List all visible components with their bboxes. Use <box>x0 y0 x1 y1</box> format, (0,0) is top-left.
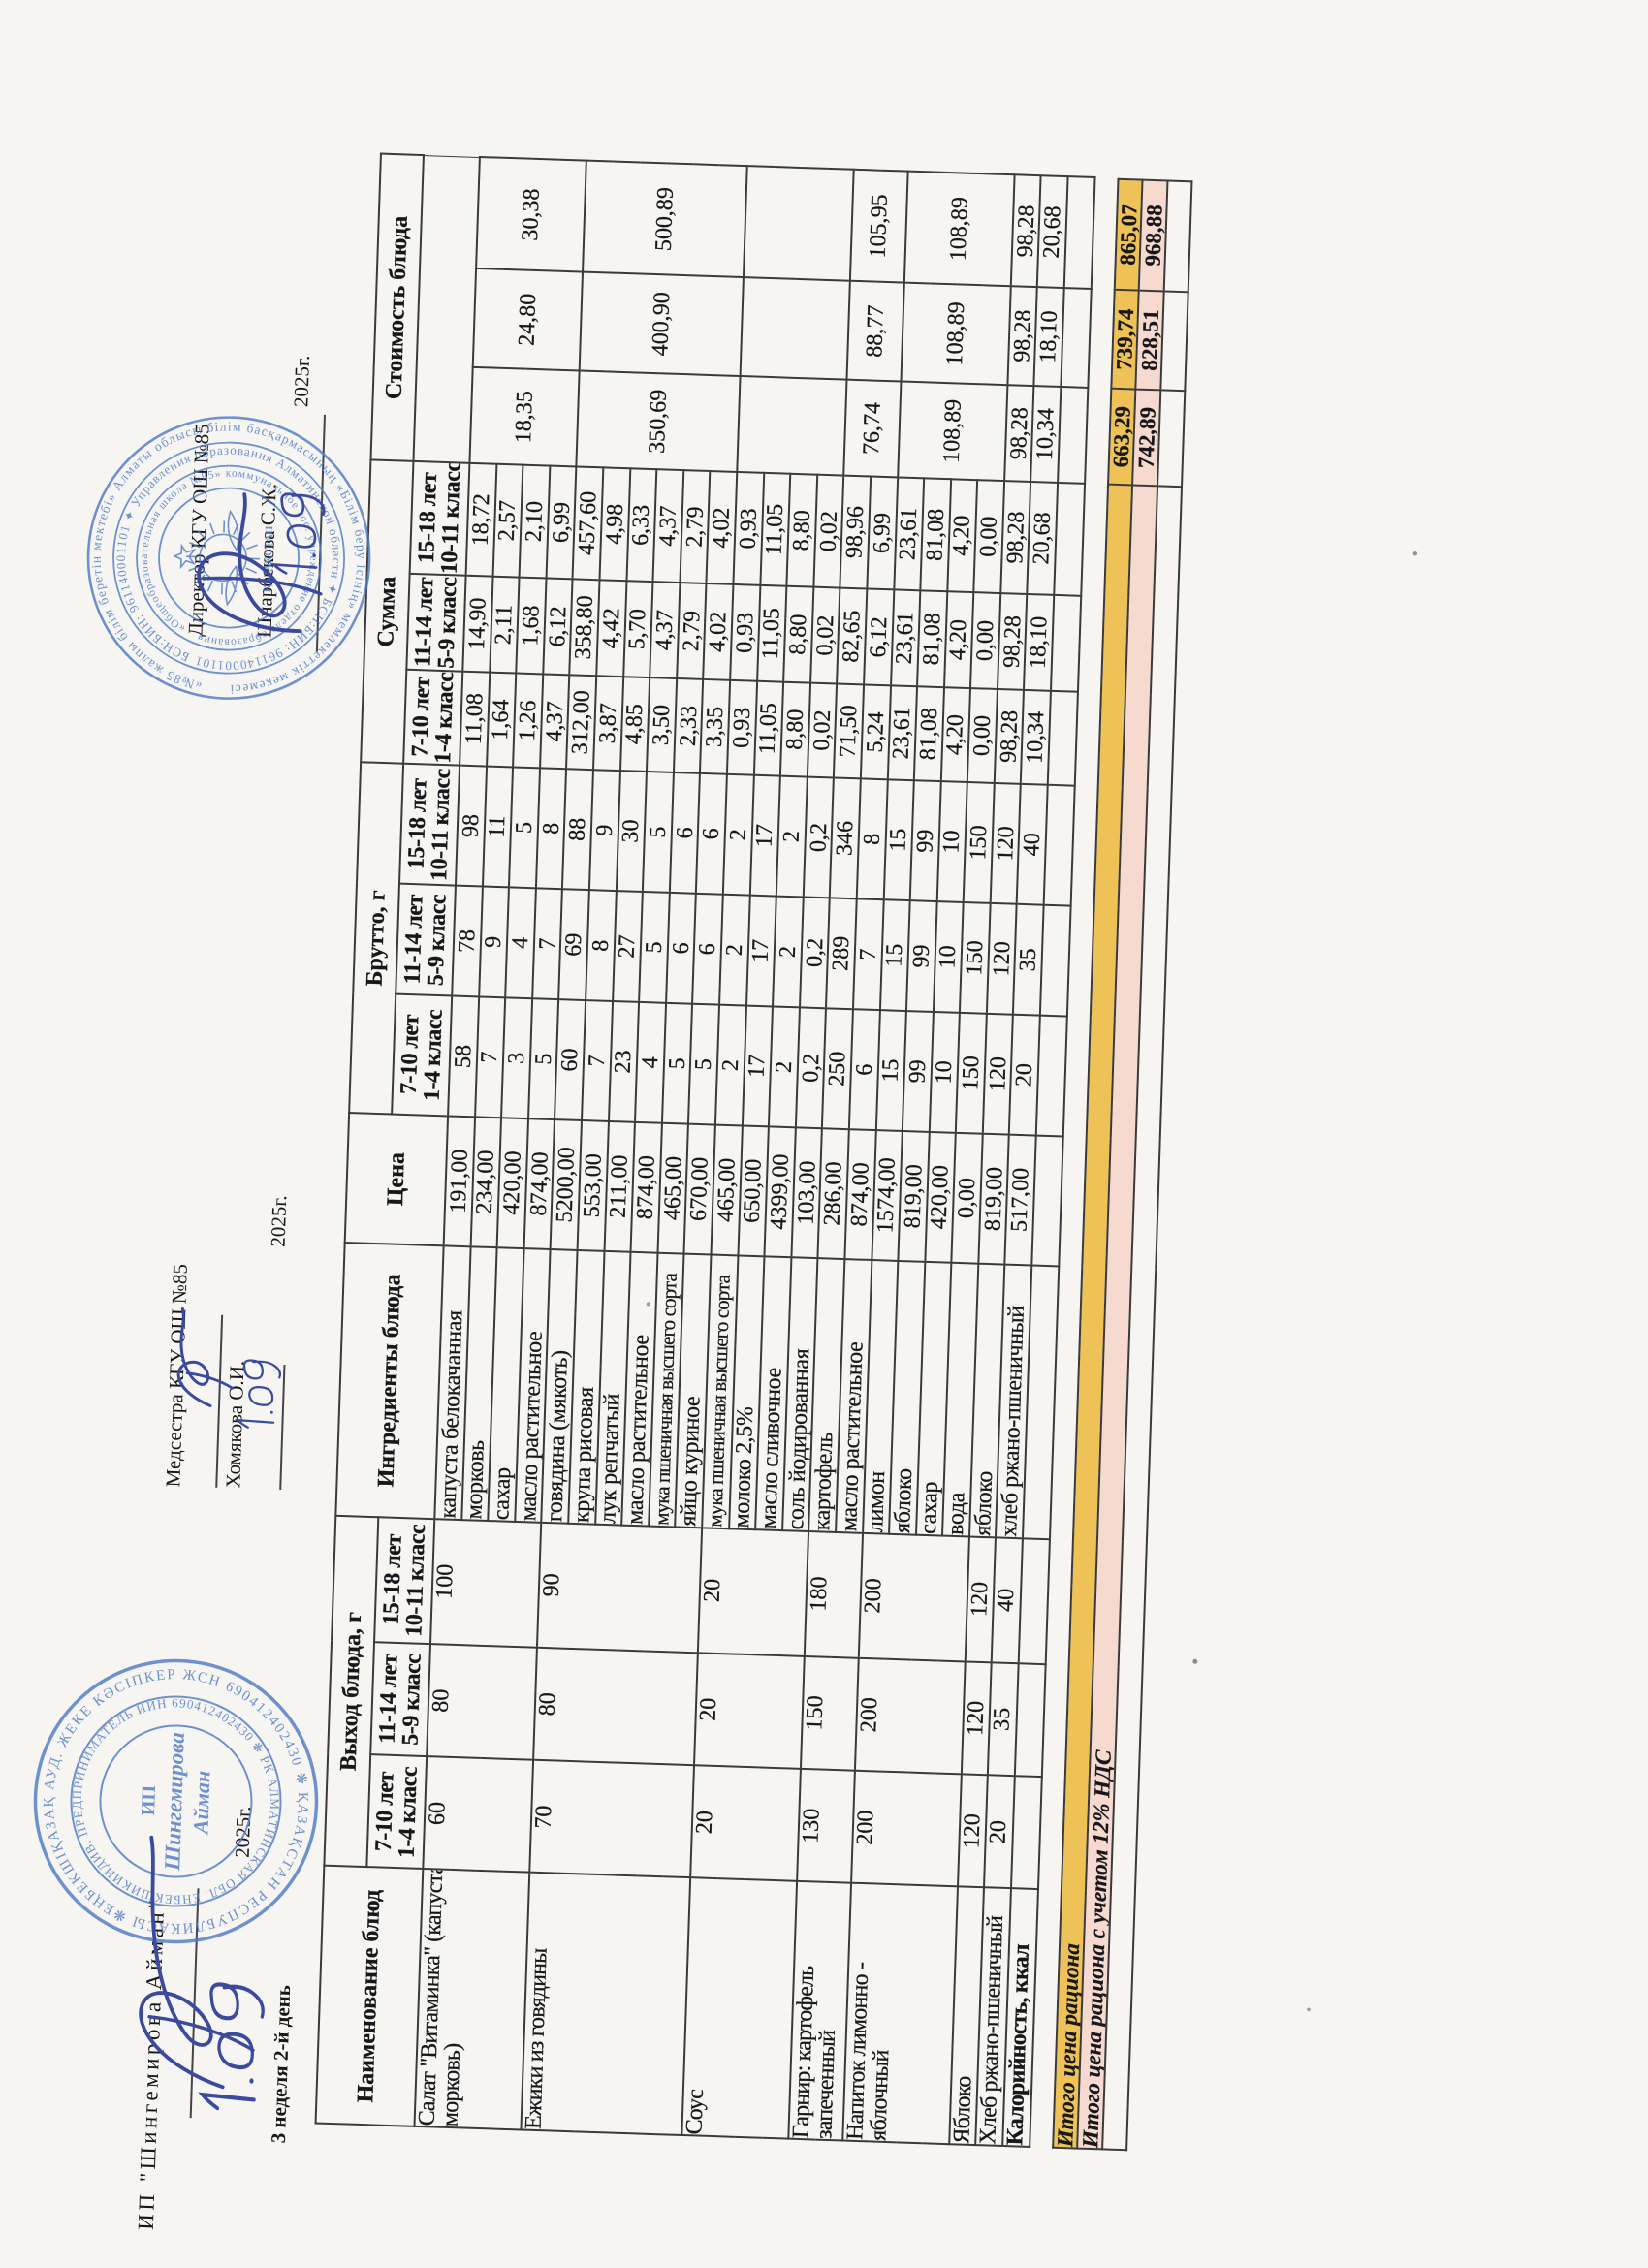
svg-text:Айман: Айман <box>188 1770 214 1836</box>
svg-text:Шингемирова: Шингемирова <box>160 1732 189 1873</box>
svg-text:ИНДИВ. ПРЕДПРИНИМАТЕЛЬ ИИН 690: ИНДИВ. ПРЕДПРИНИМАТЕЛЬ ИИН 690412402430 … <box>0 1689 286 2268</box>
svg-text:ИП: ИП <box>138 1784 160 1815</box>
